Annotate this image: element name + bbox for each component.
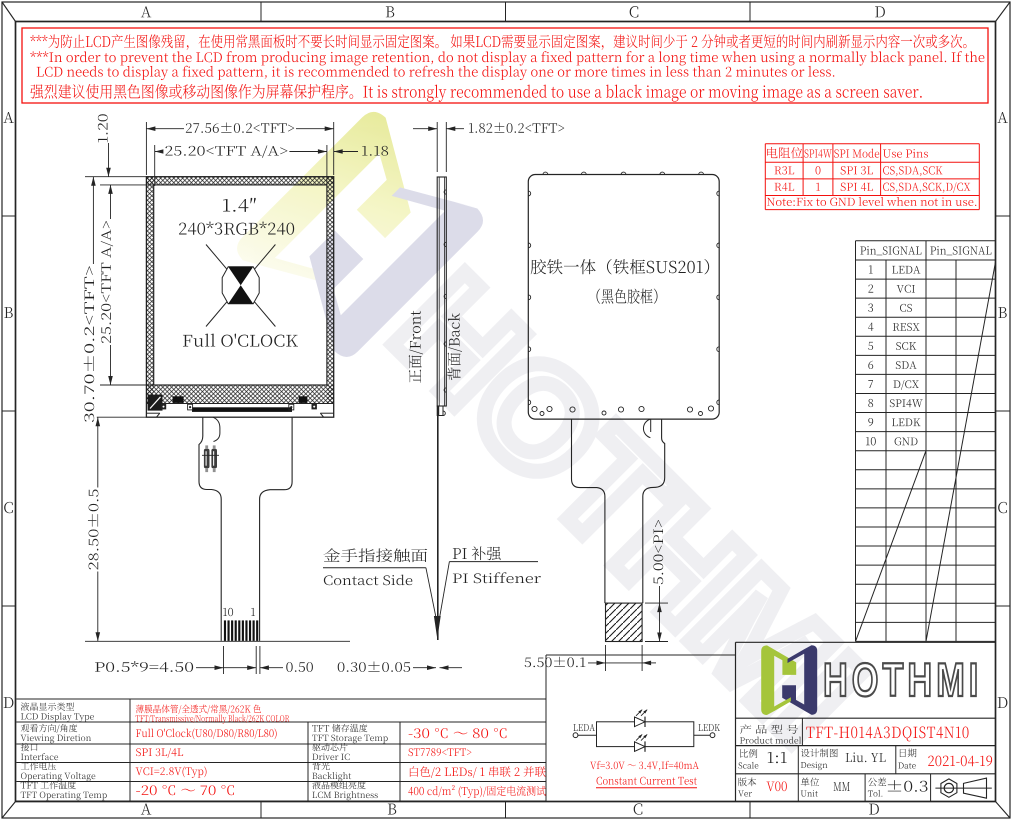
svg-text:HOTHMI: HOTHMI [823,654,982,707]
